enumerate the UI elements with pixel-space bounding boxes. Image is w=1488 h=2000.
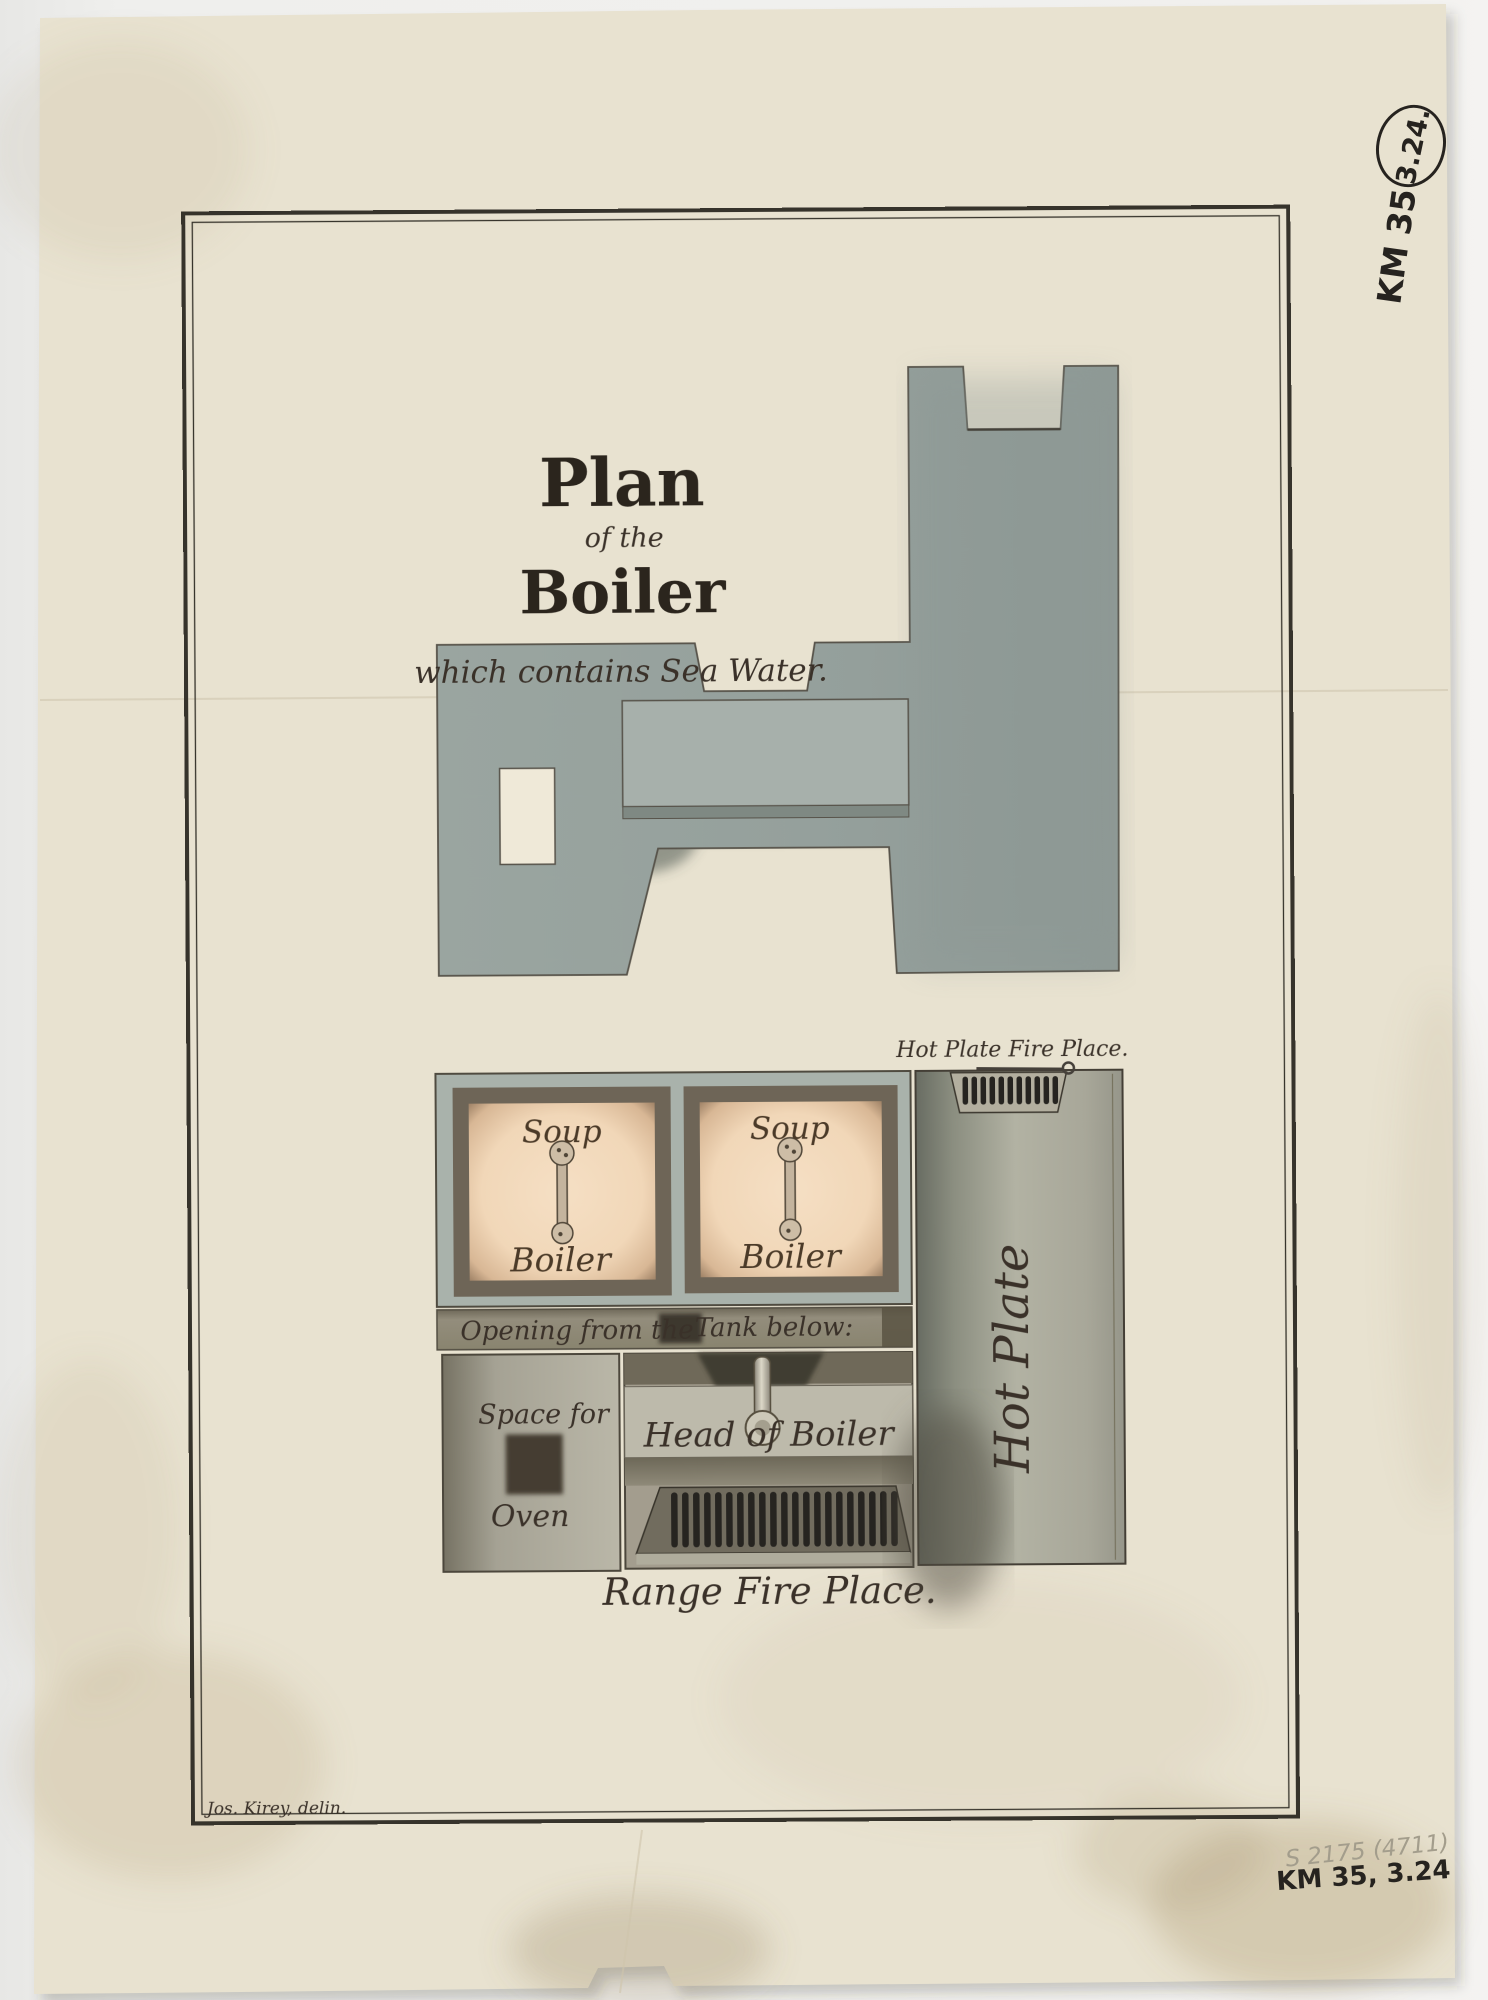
below-head-band bbox=[625, 1456, 913, 1486]
oven-label: Oven bbox=[491, 1499, 570, 1534]
soup-boiler-section: Soup Boiler Soup Boiler bbox=[435, 1071, 911, 1307]
title-line3: Boiler bbox=[519, 557, 727, 628]
opening-right-label: Tank below: bbox=[695, 1312, 854, 1343]
title-subtitle: which contains Sea Water. bbox=[414, 652, 828, 691]
space-for-label: Space for bbox=[478, 1399, 611, 1431]
notch-bottom-line bbox=[968, 429, 1061, 430]
boiler-bar bbox=[622, 699, 909, 819]
range-grate-base bbox=[636, 1552, 910, 1565]
hot-plate-fire-place-label: Hot Plate Fire Place. bbox=[895, 1037, 1128, 1063]
boiler-opening-hole bbox=[500, 768, 556, 864]
boiler-plan-svg: Plan of the Boiler which contains Sea Wa… bbox=[0, 0, 1488, 2000]
column-wash bbox=[916, 378, 1116, 965]
hot-plate-grate-bars-icon bbox=[962, 1076, 1058, 1105]
opening-band: Opening from the Tank below: bbox=[437, 1307, 912, 1350]
hot-plate-label: Hot Plate bbox=[983, 1244, 1040, 1475]
soup1-bottom-label: Boiler bbox=[509, 1240, 613, 1280]
opening-band-right-dark bbox=[882, 1307, 912, 1347]
poker-rod-icon bbox=[976, 1068, 1062, 1070]
scanned-drawing-page: Plan of the Boiler which contains Sea Wa… bbox=[0, 0, 1488, 2000]
title-line2: of the bbox=[585, 522, 664, 553]
opening-left-label: Opening from the bbox=[460, 1315, 693, 1346]
signature: Jos. Kirey, delin. bbox=[204, 1798, 346, 1819]
hot-plate-block: Hot Plate bbox=[890, 1062, 1125, 1609]
soup1-top-label: Soup bbox=[522, 1114, 602, 1150]
soup2-top-label: Soup bbox=[750, 1110, 830, 1146]
range-grate-bars-icon bbox=[671, 1491, 898, 1547]
range-fire-place-label: Range Fire Place. bbox=[602, 1569, 937, 1614]
title-line1: Plan bbox=[539, 443, 705, 522]
oven-opening bbox=[506, 1434, 563, 1494]
soup2-bottom-label: Boiler bbox=[739, 1236, 843, 1276]
range-plan-figure: Soup Boiler Soup Boiler Opening from the… bbox=[435, 1037, 1132, 1615]
head-of-boiler-label: Head of Boiler bbox=[643, 1414, 896, 1456]
oven-box: Space for Oven bbox=[442, 1354, 620, 1572]
range-box: Head of Boiler bbox=[624, 1352, 913, 1569]
